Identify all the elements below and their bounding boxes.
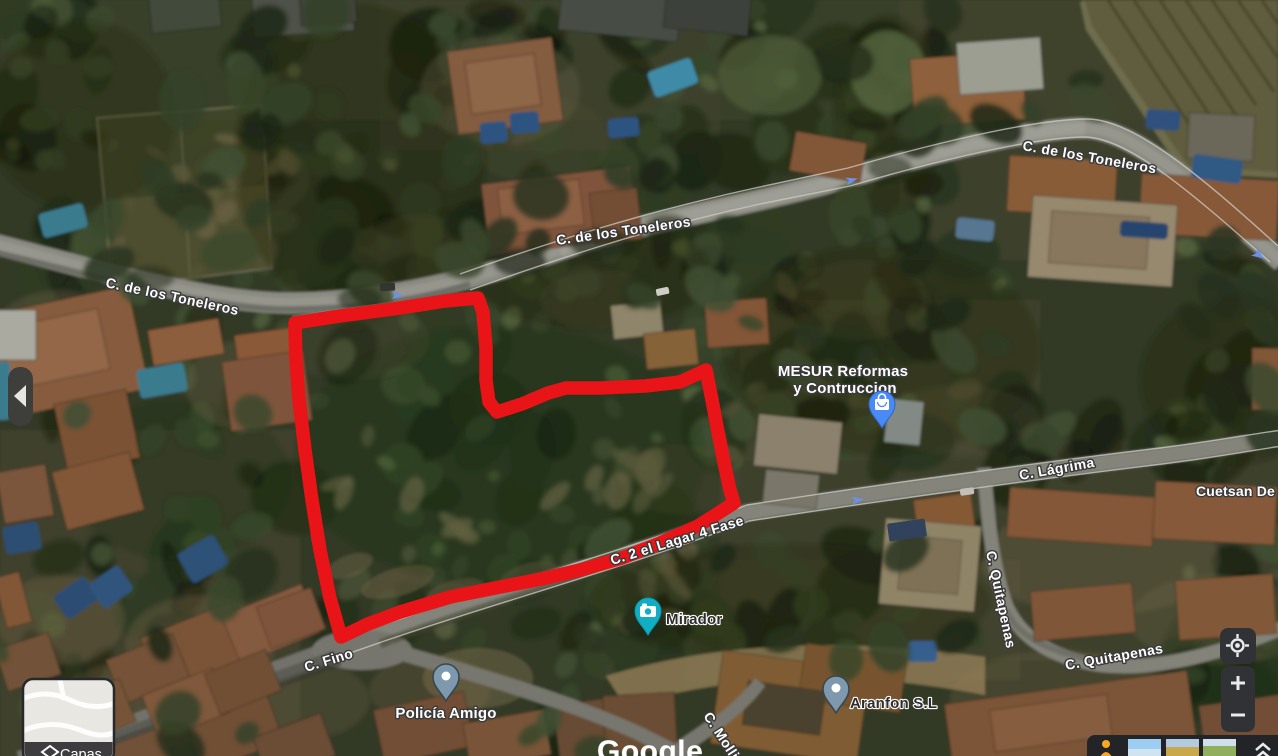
svg-text:Policía Amigo: Policía Amigo — [395, 705, 496, 722]
svg-text:Mirador: Mirador — [666, 611, 722, 628]
svg-text:Capas: Capas — [60, 747, 102, 756]
svg-text:Aranfon S.L: Aranfon S.L — [850, 695, 937, 712]
svg-text:MESUR Reformas: MESUR Reformas — [778, 363, 908, 380]
svg-text:Google: Google — [597, 735, 703, 756]
svg-text:Cuetsan De: Cuetsan De — [1196, 483, 1275, 499]
